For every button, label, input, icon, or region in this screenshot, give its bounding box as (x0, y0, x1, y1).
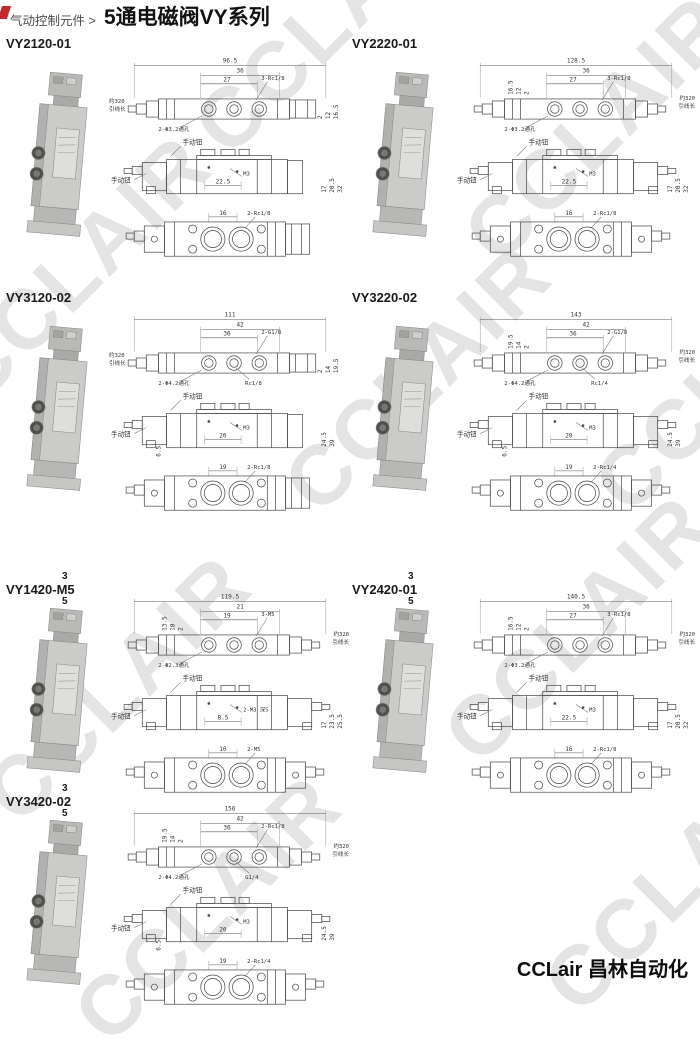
vdim: 32 (683, 185, 690, 193)
valve-section: VY3120-02 111 42 36 (6, 290, 350, 540)
lead-wire-label: 约320 引线长 (109, 351, 126, 367)
product-photo (358, 66, 458, 246)
bottom-view: 19 2-Rc1/4 (126, 958, 324, 1004)
valve-photo-shape (25, 71, 94, 236)
vdim: 32 (337, 185, 344, 193)
holes-label: 2-Φ3.2通孔 (504, 125, 536, 133)
lead-line2: 引线长 (109, 359, 126, 367)
dimension-drawings: 111 42 36 2-G1/8 2-Φ4.2通孔 (108, 308, 350, 536)
right-solenoid-top (290, 849, 320, 865)
right-end-top (290, 100, 316, 118)
dim-b: 36 (223, 330, 231, 337)
model-title: VY2220-01 (352, 36, 696, 51)
valve-section: VY2120-01 96.5 36 27 (6, 36, 350, 286)
dim-a: 21 (236, 604, 244, 611)
manual-knob-label-top: 手动钮 (529, 673, 549, 682)
vdim: 2 (524, 627, 531, 631)
top-height-dims: 2 12 16.5 (317, 104, 340, 119)
dim-b: 36 (223, 824, 231, 831)
valve-section: 3 VY3420-02 5 156 42 (6, 784, 350, 1034)
lead-line2: 引线长 (678, 102, 695, 110)
side-view: 手动钮 手动钮 22.5 (111, 137, 344, 193)
vdim: 23.5 (329, 714, 336, 729)
model-title: VY2120-01 (6, 36, 350, 51)
thread-label: 3-Rc1/8 (607, 76, 630, 82)
top-view: 143 42 36 2-G1/8 2-Φ4.2通孔 (474, 312, 695, 388)
holes-label: 2-Φ4.2通孔 (158, 379, 190, 387)
thread-label: 3-Rc1/8 (607, 612, 630, 618)
vdim: 2 (524, 345, 531, 349)
footer-brand: CCLair 昌林自动化 (517, 953, 688, 982)
vdim: 14 (170, 835, 177, 843)
right-solenoid-bottom (285, 974, 323, 1000)
top-view: 111 42 36 2-G1/8 2-Φ4.2通孔 (109, 312, 340, 388)
top-height-dims: 2 14 19.5 (317, 358, 340, 373)
vdim: 2 (317, 115, 324, 119)
thread-label: 2-Rc1/8 (261, 824, 284, 830)
top-height-dims: 16.5 12 2 (507, 616, 530, 631)
port-label-group: G1/4 (236, 862, 259, 881)
vdim: 16.5 (507, 616, 514, 631)
vdim: 24.5 (321, 926, 328, 941)
dim-b: 27 (569, 612, 577, 619)
thread3-label: 2-Rc1/8 (247, 465, 270, 471)
dim-c: 20 (219, 927, 227, 934)
vdim: 16.5 (507, 80, 514, 95)
dim-d: 10 (219, 746, 227, 753)
dim-d: 19 (219, 958, 227, 965)
dim-b: 27 (223, 76, 231, 83)
side-height-dims: 17 20.5 32 (667, 178, 690, 193)
vdim: 2 (178, 627, 185, 631)
side-height-dims: 17 23.5 25.5 (321, 714, 344, 729)
vdim: 2 (178, 839, 185, 843)
vdim: 24.5 (321, 432, 328, 447)
side-view: 手动钮 手动钮 20 (111, 391, 336, 456)
valve-photo-shape (371, 607, 440, 772)
dimension-drawings: 140.5 36 27 3-Rc1/8 2-Φ3.2通孔 (454, 590, 696, 818)
product-photo (12, 814, 112, 994)
thread2-label: M3 (243, 426, 250, 432)
lead-line1: 约320 (679, 348, 695, 356)
right-end-top (290, 354, 316, 372)
thread-label: 2-G1/8 (607, 330, 627, 336)
right-end-side (287, 160, 302, 193)
side-view: 手动钮 手动钮 20 (457, 391, 682, 456)
port-count-top: 3 (6, 784, 350, 794)
side-view: 手动钮 手动钮 22.5 (457, 673, 690, 729)
dim-total: 96.5 (223, 58, 238, 65)
lead-wire-label: 约320 引线长 (332, 630, 349, 646)
lead-line2: 引线长 (332, 850, 349, 858)
dim-a: 42 (236, 322, 244, 329)
lead-wire-label: 约320 引线长 (332, 842, 349, 858)
holes-label: 2-Φ3.2通孔 (504, 661, 536, 669)
vdim: 14 (325, 365, 332, 373)
manual-knob-label-left: 手动钮 (457, 712, 477, 721)
dim-b: 19 (223, 612, 231, 619)
right-solenoid-bottom (631, 762, 669, 788)
side-height-dims: 24.5 39 (321, 926, 336, 941)
top-height-dims: 13.5 10 2 (161, 616, 184, 631)
dimension-drawings: 156 42 36 2-Rc1/8 2-Φ4.2通孔 (108, 802, 350, 1030)
port-label: Rc1/8 (245, 381, 262, 387)
side-height-dims: 17 20.5 32 (321, 178, 344, 193)
dim-d: 16 (565, 210, 573, 217)
bottom-view: 19 2-Rc1/4 (472, 464, 670, 510)
lead-line1: 约320 (109, 351, 125, 359)
vdim: 39 (329, 439, 336, 447)
valve-photo-shape (25, 325, 94, 490)
dim-b: 36 (569, 330, 577, 337)
holes-label: 2-Φ3.2通孔 (158, 125, 190, 133)
product-photo (358, 320, 458, 500)
manual-knob-label-left: 手动钮 (111, 176, 131, 185)
valve-section: VY3220-02 143 42 36 (352, 290, 696, 540)
holes-label: 2-Φ4.2通孔 (158, 873, 190, 881)
dim-a: 42 (236, 816, 244, 823)
vdim: 16.5 (333, 104, 340, 119)
thread2-label: M3 (589, 426, 596, 432)
vdim: 14 (516, 341, 523, 349)
dim-total: 128.5 (567, 58, 586, 65)
bottom-view: 19 2-Rc1/8 (126, 464, 310, 510)
top-view: 156 42 36 2-Rc1/8 2-Φ4.2通孔 (128, 806, 349, 882)
dimension-drawings: 143 42 36 2-G1/8 2-Φ4.2通孔 (454, 308, 696, 536)
lead-wire-label: 约320 引线长 (678, 94, 695, 110)
top-view: 128.5 36 27 3-Rc1/8 2-Φ3.2通孔 (474, 58, 695, 134)
port-label-group: Rc1/4 (582, 368, 608, 387)
manual-knob-label-top: 手动钮 (529, 391, 549, 400)
side-height-dims: 24.5 39 (321, 432, 336, 447)
top-view: 119.5 21 19 3-M5 2-Φ2.3通孔 (128, 594, 349, 670)
right-end-bottom (285, 478, 309, 508)
thread3-label: 2-Rc1/8 (247, 211, 270, 217)
vdim: 20.5 (329, 178, 336, 193)
thread-label: 2-G1/8 (261, 330, 281, 336)
lead-line1: 约320 (333, 842, 349, 850)
vdim: 12 (516, 623, 523, 631)
manual-knob-label-left: 手动钮 (457, 176, 477, 185)
right-solenoid-top (636, 101, 666, 117)
dim-a: 42 (582, 322, 590, 329)
manual-knob-label-left: 手动钮 (111, 430, 131, 439)
vdim: 20.5 (675, 714, 682, 729)
dim-d: 16 (219, 210, 227, 217)
side-view: 手动钮 手动钮 22.5 (457, 137, 690, 193)
product-photo (12, 602, 112, 782)
valve-photo-shape (25, 607, 94, 772)
thread2-label: M3 (589, 708, 596, 714)
dim-a: 36 (236, 68, 244, 75)
manual-knob-label-left: 手动钮 (111, 712, 131, 721)
thread2-label: M3 (243, 920, 250, 926)
thread-label: 3-M5 (261, 612, 274, 618)
vdim: 19.5 (161, 828, 168, 843)
manual-knob-label-top: 手动钮 (183, 391, 203, 400)
lead-line2: 引线长 (678, 356, 695, 364)
dim-d: 19 (565, 464, 573, 471)
lead-line1: 约320 (333, 630, 349, 638)
side-height-dims: 24.5 39 (667, 432, 682, 447)
port-count-top: 3 (6, 572, 350, 582)
vdim: 20.5 (675, 178, 682, 193)
breadcrumb: 气动控制元件 > (10, 10, 96, 29)
holes-label: 2-Φ2.3通孔 (158, 661, 190, 669)
lead-wire-label: 约320 引线长 (109, 97, 126, 113)
product-photo (12, 66, 112, 246)
bottom-view: 16 2-Rc1/8 (126, 210, 310, 256)
manual-knob-label-top: 手动钮 (183, 885, 203, 894)
top-height-dims: 19.5 14 2 (507, 334, 530, 349)
s-dim: 6.5 (155, 446, 162, 457)
thread-label: 3-Rc1/8 (261, 76, 284, 82)
right-solenoid-bottom (631, 226, 669, 252)
product-photo (12, 320, 112, 500)
vdim: 17 (667, 721, 674, 729)
valve-photo-shape (25, 819, 94, 984)
side-view: 手动钮 手动钮 20 (111, 885, 336, 950)
thread2-label: M3 (243, 172, 250, 178)
port-label: G1/4 (245, 875, 259, 881)
valve-photo-shape (371, 71, 440, 236)
vdim: 17 (321, 185, 328, 193)
right-solenoid-bottom (631, 480, 669, 506)
dim-c: 20 (565, 433, 573, 440)
sections-grid: VY2120-01 96.5 36 27 (0, 0, 700, 998)
vdim: 12 (516, 87, 523, 95)
vdim: 19.5 (333, 358, 340, 373)
valve-section: VY2220-01 128.5 36 27 (352, 36, 696, 286)
lead-line2: 引线长 (678, 638, 695, 646)
s-dim: 6.5 (155, 940, 162, 951)
lead-line2: 引线长 (109, 105, 126, 113)
thread3-label: 2-Rc1/8 (593, 211, 616, 217)
page-title: 5通电磁阀VY系列 (104, 1, 270, 31)
thread2-label: M3 (589, 172, 596, 178)
dim-c: 22.5 (562, 179, 577, 186)
dim-d: 19 (219, 464, 227, 471)
lead-line1: 约320 (679, 630, 695, 638)
top-view: 96.5 36 27 3-Rc1/8 2-Φ3.2通孔 (109, 58, 340, 134)
dim-a: 36 (582, 68, 590, 75)
vdim: 10 (170, 623, 177, 631)
manual-knob-label-top: 手动钮 (183, 137, 203, 146)
page-header: 气动控制元件 > 5通电磁阀VY系列 (0, 0, 700, 36)
thread2-label: 2-M3 深5 (243, 706, 269, 714)
side-height-dims: 17 20.5 32 (667, 714, 690, 729)
vdim: 19.5 (507, 334, 514, 349)
top-view: 140.5 36 27 3-Rc1/8 2-Φ3.2通孔 (474, 594, 695, 670)
dim-c: 8.5 (217, 715, 228, 722)
valve-section: 3 VY2420-01 5 140.5 36 (352, 572, 696, 822)
top-height-dims: 16.5 12 2 (507, 80, 530, 95)
lead-wire-label: 约320 引线长 (678, 348, 695, 364)
manual-knob-label-top: 手动钮 (183, 673, 203, 682)
vdim: 17 (321, 721, 328, 729)
lead-line2: 引线长 (332, 638, 349, 646)
dimension-drawings: 128.5 36 27 3-Rc1/8 2-Φ3.2通孔 (454, 54, 696, 282)
right-solenoid-top (636, 355, 666, 371)
right-solenoid-top (290, 637, 320, 653)
model-title: VY3120-02 (6, 290, 350, 305)
right-end-bottom (285, 224, 309, 254)
manual-knob-label-left: 手动钮 (457, 430, 477, 439)
holes-label: 2-Φ4.2通孔 (504, 379, 536, 387)
bottom-view: 16 2-Rc1/8 (472, 210, 670, 256)
vdim: 39 (675, 439, 682, 447)
port-count-top: 3 (352, 572, 696, 582)
vdim: 2 (524, 91, 531, 95)
dim-c: 22.5 (216, 179, 231, 186)
vdim: 39 (329, 933, 336, 941)
vdim: 32 (683, 721, 690, 729)
thread3-label: 2-Rc1/4 (247, 959, 271, 965)
right-end-side (287, 414, 302, 447)
port-label: Rc1/4 (591, 381, 608, 387)
dim-d: 16 (565, 746, 573, 753)
dimension-drawings: 96.5 36 27 3-Rc1/8 2-Φ3.2通孔 (108, 54, 350, 282)
top-height-dims: 19.5 14 2 (161, 828, 184, 843)
lead-line1: 约320 (109, 97, 125, 105)
lead-wire-label: 约320 引线长 (678, 630, 695, 646)
dim-total: 119.5 (221, 594, 240, 601)
vdim: 25.5 (337, 714, 344, 729)
thread3-label: 2-Rc1/8 (593, 747, 616, 753)
vdim: 12 (325, 111, 332, 119)
product-photo (358, 602, 458, 782)
dim-c: 20 (219, 433, 227, 440)
valve-photo-shape (371, 325, 440, 490)
dim-c: 22.5 (562, 715, 577, 722)
thread3-label: 2-M5 (247, 747, 260, 753)
side-view: 手动钮 手动钮 8.5 (111, 673, 344, 729)
bottom-view: 16 2-Rc1/8 (472, 746, 670, 792)
vdim: 24.5 (667, 432, 674, 447)
dim-b: 27 (569, 76, 577, 83)
dim-total: 143 (571, 312, 582, 319)
right-solenoid-top (636, 637, 666, 653)
vdim: 17 (667, 185, 674, 193)
s-dim: 6.5 (501, 446, 508, 457)
port-label-group: Rc1/8 (236, 368, 262, 387)
thread3-label: 2-Rc1/4 (593, 465, 617, 471)
vdim: 13.5 (161, 616, 168, 631)
model-title: VY3220-02 (352, 290, 696, 305)
dim-total: 156 (225, 806, 236, 813)
dim-total: 140.5 (567, 594, 586, 601)
manual-knob-label-left: 手动钮 (111, 924, 131, 933)
dim-total: 111 (225, 312, 236, 319)
vdim: 2 (317, 369, 324, 373)
dim-a: 36 (582, 604, 590, 611)
lead-line1: 约320 (679, 94, 695, 102)
manual-knob-label-top: 手动钮 (529, 137, 549, 146)
